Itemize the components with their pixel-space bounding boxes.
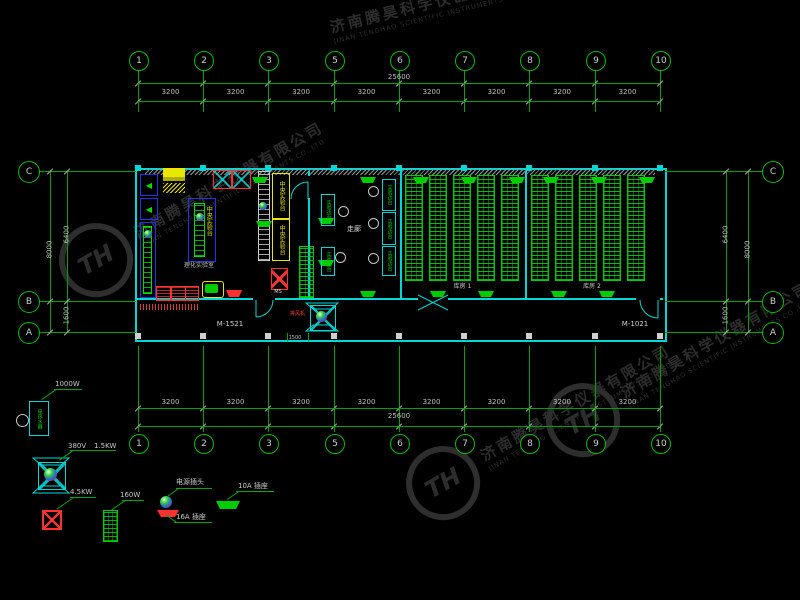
heater-label: 160W [120,492,140,499]
wall-post [461,165,467,171]
wall-post [331,333,337,339]
wall-post [592,165,598,171]
segment-dim: 3200 [203,89,268,96]
socket-10a-symbol [551,291,567,297]
leader-line [174,522,212,523]
segment-dim: 3200 [138,89,203,96]
furnace-symbol [42,510,62,530]
socket-10a-symbol [478,291,494,297]
side-bench-label-box: 实验边台 [321,247,335,276]
leader-line [176,488,212,489]
wall-post [396,165,402,171]
socket-10a-symbol [509,177,525,183]
socket-10a-symbol [252,177,268,183]
axis-bubble-B: B [18,291,40,313]
socket-16a-label: 16A 插座 [176,514,206,521]
axis-bubble-A: A [18,322,40,344]
axis-bubble-6: 6 [390,51,410,71]
socket-10a-symbol [599,291,615,297]
total-dim: 8000 [47,230,54,270]
wall-post [135,165,141,171]
axis-bubble-3: 3 [259,51,279,71]
wall-post [461,333,467,339]
grid-line [39,301,136,302]
fan-power-label: 1.5KW [94,443,116,450]
segment-dim: 3200 [529,399,595,406]
axis-bubble-7: 7 [455,434,475,454]
grid-line [39,332,136,333]
side-bench-label: 实验边台 [386,219,391,239]
storage-rack [531,175,549,281]
socket-10a-symbol [591,177,607,183]
storage-rack [579,175,597,281]
segment-dim: 3200 [334,399,399,406]
floor-drain-circle [368,253,379,264]
side-bench-label-box: 实验边台 [382,212,396,245]
storage-rack [477,175,495,281]
axis-bubble-B: B [762,291,784,313]
wall-post [592,333,598,339]
plug-symbol [160,496,172,508]
grid-line [39,171,136,172]
storage-room-label: 库房 1 [402,284,523,290]
segment-dim: 1600 [723,296,730,336]
axis-bubble-2: 2 [194,434,214,454]
side-bench-label-box: 实验边台 [382,246,396,276]
wall-post [331,165,337,171]
storage-rack [555,175,573,281]
storage-rack [453,175,471,281]
wall-post [526,165,532,171]
socket-10a-symbol [430,291,446,297]
wall-post [657,165,663,171]
socket-10a-symbol [256,221,272,227]
wall-post [135,333,141,339]
socket-10a-label: 10A 插座 [238,483,268,490]
total-dim: 25600 [138,413,660,420]
axis-bubble-2: 2 [194,51,214,71]
grid-stem [660,346,661,432]
side-bench-label: 实验边台 [386,251,391,271]
leader-line [54,389,82,390]
segment-dim: 3200 [595,399,660,406]
axis-bubble-C: C [762,161,784,183]
side-bench-label: 实验边台 [325,200,330,220]
segment-dim: 3200 [464,399,529,406]
axis-bubble-A: A [762,322,784,344]
axis-bubble-3: 3 [259,434,279,454]
wall-post [396,333,402,339]
leader-line [70,497,96,498]
socket-10a-symbol [360,291,376,297]
wall-post [200,333,206,339]
floor-drain-circle [368,218,379,229]
floor-drain-circle [335,252,346,263]
axis-bubble-1: 1 [129,51,149,71]
axis-bubble-8: 8 [520,51,540,71]
segment-dim: 3200 [268,89,334,96]
leader-line [122,500,144,501]
legend-fan-ball [44,468,57,481]
storage-rack [405,175,423,281]
segment-dim: 3200 [268,399,334,406]
storage-rack [627,175,645,281]
axis-bubble-C: C [18,161,40,183]
axis-bubble-10: 10 [651,434,671,454]
segment-dim: 3200 [529,89,595,96]
side-bench-label: 实验边台 [386,185,391,205]
segment-dim: 3200 [203,399,268,406]
socket-10a-symbol [360,177,376,183]
wall-post [526,333,532,339]
axis-bubble-9: 9 [586,51,606,71]
total-dim: 8000 [745,230,752,270]
dim-line [138,83,660,84]
dim-line [138,101,660,102]
axis-bubble-5: 5 [325,51,345,71]
dim-line [138,408,660,409]
side-bench-label: 实验边台 [325,252,330,272]
socket-10a-symbol [413,177,429,183]
storage-room-label: 库房 2 [527,284,657,290]
side-bench-label-box: 实验边台 [382,179,396,211]
plug-label: 电源插头 [176,479,204,486]
storage-rack [429,175,447,281]
segment-dim: 3200 [464,89,529,96]
water-heater-label: 1000W [55,381,80,388]
axis-bubble-8: 8 [520,434,540,454]
axis-bubble-10: 10 [651,51,671,71]
segment-dim: 3200 [399,399,464,406]
segment-dim: 6400 [64,215,71,255]
heater-symbol [103,510,118,542]
socket-10a-legend-symbol [216,501,240,509]
grid-stem [660,69,661,112]
dim-line [138,426,660,427]
socket-10a-symbol [543,177,559,183]
segment-dim: 3200 [138,399,203,406]
water-heater-symbol: 电热水器 [29,401,49,436]
wall-post [265,165,271,171]
floor-drain-circle [338,206,349,217]
cad-canvas: TH济南腾昊科学仪器有限公司JINAN TENGHAO SCIENTIFIC I… [0,0,800,600]
axis-bubble-9: 9 [586,434,606,454]
storage-rack [501,175,519,281]
segment-dim: 6400 [723,215,730,255]
total-dim: 25600 [138,74,660,81]
side-bench-label-box: 实验边台 [321,194,335,226]
segment-dim: 1600 [64,296,71,336]
legend-circle [16,414,29,427]
furnace-label: 4.5KW [70,489,92,496]
axis-bubble-6: 6 [390,434,410,454]
leader-line [236,491,274,492]
segment-dim: 3200 [399,89,464,96]
fan-voltage-label: 380V [68,443,86,450]
floor-drain-circle [368,186,379,197]
wall-post [200,165,206,171]
water-heater-text: 电热水器 [36,409,41,429]
wall-post [657,333,663,339]
storage-rack [603,175,621,281]
segment-dim: 3200 [334,89,399,96]
wall-post [265,333,271,339]
axis-bubble-7: 7 [455,51,475,71]
axis-bubble-1: 1 [129,434,149,454]
axis-bubble-5: 5 [325,434,345,454]
segment-dim: 3200 [595,89,660,96]
leader-line [70,450,116,451]
socket-10a-symbol [461,177,477,183]
socket-10a-symbol [639,177,655,183]
